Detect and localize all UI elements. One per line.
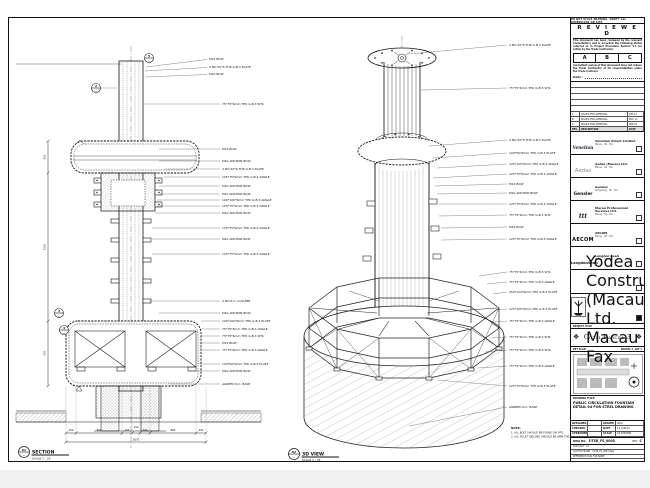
threed-drawing [304, 36, 504, 448]
consultant-box-macau-professional: ttt Macau Professional Services Ltd. Mac… [571, 201, 644, 224]
steel-annotation: M12 BOLT [222, 341, 237, 345]
date-label: Date : [573, 75, 583, 79]
bubble-number: 2 [95, 84, 97, 88]
steel-annotation: M12 BOLT [509, 182, 524, 186]
credit-value: LWO [616, 421, 644, 425]
notes-block: NOTE: 1. ALL BOLT SHOULD BE FIXING ON SI… [511, 426, 570, 439]
threed-annotations: 4 NO 50*6 THK G.B.3 PLATE 75*75*6mm THK … [509, 43, 559, 409]
rev-footer-label: DESCRIPTION [580, 127, 628, 131]
steel-annotation: M12 BOLT [222, 147, 237, 151]
dwg-no-label: DWG NO. [573, 440, 586, 443]
status-abc-row: A B C [573, 53, 642, 63]
credit-value: 14-JUN-13 [616, 426, 644, 430]
status-checkbox [636, 169, 642, 175]
view-scale: SCALE 1 : 25 [32, 457, 51, 461]
status-checkbox [636, 192, 642, 198]
dim-value: 860 [171, 428, 176, 432]
credit-value: - [588, 426, 602, 430]
steel-annotation: 125*75*6mm THK G.B.3 ANGLE [509, 172, 557, 176]
consultant-address: Macau · Tel · Fax [595, 236, 639, 239]
consultant-address: Macau · Tel · Fax [595, 144, 639, 147]
steel-annotation: 75*75*6mm THK G.B.3 ANGLE [509, 319, 555, 323]
dim-value: 650 [43, 350, 47, 355]
steel-annotation: 125*75*6mm THK G.B.3 ANGLE [222, 226, 270, 230]
consultant-box-aedas: Aedas Aedas (Macau) Ltd. Macau · Tel · F… [571, 155, 644, 178]
steel-annotation: 450*120*6mm THK G.B.3 PLATE [509, 290, 558, 294]
steel-annotation: 125*75*6mm THK G.B.3 ANGLE [222, 175, 270, 179]
steel-annotation: M12 BOLT [209, 57, 224, 61]
steel-annotation: 125*75*6mm THK G.B.3 ANGLE [222, 204, 270, 208]
cad-info-rows: CAD PLOT : A1 CAD FILE NAME : 3-TSR_FS_0… [571, 445, 644, 461]
rev-footer-label: DATE [628, 127, 644, 131]
banner-emblem-left-icon: ❖ [573, 334, 579, 341]
dim-value: 200 [199, 428, 204, 432]
status-b: B [596, 54, 618, 62]
note-line: 2. ALL FILLET WELDED SHOULD BE 6MM THK. [511, 435, 570, 439]
steel-annotation: M10 ANCHOR BOLT [222, 192, 251, 196]
steel-annotation: M10 BOLT [209, 72, 224, 76]
drawing-area: M12 BOLT 4 NO 50*6 THK G.B.3 PLATE M10 B… [9, 18, 571, 461]
steel-annotation: 4 NO 50*6 THK G.B.3 PLATE [509, 43, 551, 47]
credit-label: DATE [602, 426, 616, 430]
dim-value: 1500 [43, 243, 47, 250]
bubble-number: 5 [148, 54, 150, 58]
bubble-number: 3 [58, 309, 60, 313]
steel-annotation: 75*75*6mm THK G.B.3 ANGLE [222, 327, 268, 331]
title-block: DO NOT SCALE DRAWING. VERIFY ALL DIMENSI… [570, 18, 644, 461]
status-checkbox [636, 146, 642, 152]
rev-footer-label: REV [571, 127, 580, 131]
cad-sheet: M12 BOLT 4 NO 50*6 THK G.B.3 PLATE M10 B… [0, 0, 650, 488]
revision-table: C ISSUED FOR APPROVAL JUN 13 B ISSUED FO… [571, 82, 644, 132]
steel-annotation: M10 ANCHOR BOLT [222, 237, 251, 241]
steel-annotation: M12 BOLT [509, 225, 524, 229]
revision-table-footer: REV DESCRIPTION DATE [571, 127, 644, 131]
steel-annotation: M10 ANCHOR BOLT [222, 211, 251, 215]
consultant-box-aecom: AECOM AECOM Macau · Tel · Fax [571, 224, 644, 247]
drawing-title: PUBLIC CIRCULATION FOUNTAIN DETAIL 04 FO… [573, 401, 642, 410]
credits-table: DESIGNED - DRAWN LWO CHECKED - DATE 14-J… [571, 421, 644, 438]
steel-annotation: 4 NO 50*6 THK G.B.3 PLATE [509, 138, 551, 142]
steel-annotation: 125*75*6mm THK G.B.3 ANGLE [509, 237, 557, 241]
cad-row: REFERENCE DWG FILE NAME [571, 455, 644, 460]
key-plan-label: KEY PLAN [573, 348, 586, 351]
steel-annotation: 100*100*6mm THK G.B.3 ANGLE [222, 198, 272, 202]
ttt-logo: ttt [579, 213, 587, 220]
reviewed-stamp: R E V I E W E D This document has been r… [571, 24, 644, 82]
dim-value: 200 [143, 428, 148, 432]
steel-annotation: 100*50*6mm THK G.B.3 PLATE [509, 151, 556, 155]
credit-value: AS SHOWN [616, 432, 644, 436]
dim-value: 200 [69, 428, 74, 432]
credit-label: DRAWN [602, 421, 616, 425]
aedas-logo: Aedas [575, 168, 591, 174]
section-view-label: 01 - SECTION SCALE 1 : 25 [19, 447, 70, 461]
note-title: NOTE: [511, 426, 521, 430]
steel-annotation: M10 ANCHOR BOLT [222, 159, 251, 163]
rev-date: MAY 13 [628, 117, 644, 121]
status-checkbox [636, 215, 642, 221]
contractor-tree-logo [571, 297, 586, 317]
credit-label: DESIGNED [571, 421, 588, 425]
status-c: C [619, 54, 641, 62]
steel-annotation: 125*125*6mm THK G.B.3 PLATE [509, 307, 558, 311]
dim-total: 2670 [133, 437, 140, 441]
steel-annotation: 75*75*6mm THK G.B.3 ANGLE [222, 348, 268, 352]
section-drawing [16, 46, 261, 448]
drawing-title-label: DRAWING TITLE: [573, 397, 642, 400]
steel-annotation: 125*125*6mm THK G.B.3 ANGLE [509, 162, 559, 166]
steel-annotation: 4 NO 50*6 THK G.B.3 PLATE [209, 65, 251, 69]
rev-label: REV [632, 440, 637, 443]
rev-letter: C [571, 112, 580, 116]
steel-annotation: 4 NO 50*6 THK G.B.3 PLATE [222, 167, 264, 171]
consultant-box-gensler: Gensler Gensler Hong Kong · Tel · Fax [571, 178, 644, 201]
note-line: 1. ALL BOLT SHOULD BE FIXING ON SITE. [511, 431, 564, 435]
rev-date: APR 13 [628, 122, 644, 126]
credit-label: CHECKED [571, 426, 588, 430]
consultant-name: Macau Professional Services Ltd. [595, 207, 639, 214]
contractor-box: Yodea Construction (Macau) Co., Ltd. Mac… [571, 294, 644, 324]
credit-label: SCALE [602, 432, 616, 436]
steel-annotation: 4 NO R.C. COLUMN [222, 299, 250, 303]
sheet-border: M12 BOLT 4 NO 50*6 THK G.B.3 PLATE M10 B… [8, 17, 645, 462]
steel-annotation: 100*100*6mm THK G.B.3 PLATE [222, 319, 271, 323]
dim-value: 200 [125, 428, 130, 432]
reviewed-paragraph: This document has been reviewed by the r… [573, 40, 642, 52]
rev-description: ISSUED FOR APPROVAL [580, 117, 628, 121]
dim-value: 860 [97, 428, 102, 432]
steel-annotation: 75*75*6mm THK G.B.3 SHS [509, 270, 551, 274]
venetian-logo: Venetian [573, 145, 594, 150]
dim-value: 150 [134, 425, 139, 429]
rev-letter: B [571, 117, 580, 121]
gensler-logo: Gensler [574, 192, 593, 197]
steel-annotation: 100*50*6mm THK G.B.3 PLATE [222, 362, 269, 366]
rev-letter: A [571, 122, 580, 126]
steel-annotation: M10 ANCHOR BOLT [509, 191, 538, 195]
steel-annotation: 75*75*6mm THK G.B.3 SHS [222, 102, 264, 106]
steel-annotation: 75*75*6mm THK G.B.3 ANGLE [509, 364, 555, 368]
dim-value: 650 [43, 154, 47, 159]
view-bubble-number: 01 [22, 448, 26, 452]
steel-annotation: M10 ANCHOR BOLT [222, 311, 251, 315]
rev-value: C [640, 439, 643, 443]
threed-view-label: 02 - 3D VIEW SCALE 1 : 25 [289, 449, 340, 462]
dwg-number: 3-TSR_FS_0003 [588, 439, 632, 443]
view-bubble-number: 02 [292, 450, 296, 454]
steel-annotation: 75*75*6mm THK G.B.3 SHS [509, 348, 551, 352]
date-fill-line [585, 75, 642, 79]
steel-annotation: 125*75*6mm THK G.B.3 ANGLE [222, 252, 270, 256]
rev-description: ISSUED FOR APPROVAL [580, 112, 628, 116]
reviewed-paragraph: Consultant review of this document does … [573, 65, 642, 74]
paper-edge-band [0, 470, 650, 488]
status-checkbox [636, 238, 642, 244]
steel-annotation: 75*75*6mm THK G.B.3 SHS [509, 335, 551, 339]
bubble-number: 4 [63, 326, 65, 330]
steel-annotation: 75*75*6mm THK G.B.3 ANGLE [509, 280, 555, 284]
credit-value: - [588, 432, 602, 436]
section-annotations: M12 BOLT 4 NO 50*6 THK G.B.3 PLATE M10 B… [209, 57, 272, 386]
steel-annotation: 75*75*6mm THK G.B.3 SHS [509, 213, 551, 217]
steel-annotation: 125*75*6mm THK G.B.3 ANGLE [509, 202, 557, 206]
steel-annotation: M10 ANCHOR BOLT [222, 369, 251, 373]
steel-annotation: 75*75*6mm THK G.B.3 SHS [509, 86, 551, 90]
steel-annotation: 125*75*6mm THK G.B.3 PLATE [509, 384, 556, 388]
contractor-address: Macau · Tel · Fax [586, 328, 644, 366]
aecom-logo: AECOM [572, 237, 594, 243]
steel-annotation: 75*75*6mm THK G.B.3 SHS [222, 334, 264, 338]
consultant-address: Hong Kong · Tel · Fax [595, 190, 639, 193]
consultant-box-venetian: Venetian Venetian Orient Limited Macau ·… [571, 132, 644, 155]
dwg-number-row: DWG NO. 3-TSR_FS_0003 REV C [571, 438, 644, 445]
steel-annotation: M10 ANCHOR BOLT [222, 184, 251, 188]
consultant-address: Macau · Tel · Fax [595, 214, 639, 217]
rev-description: ISSUED FOR APPROVAL [580, 122, 628, 126]
status-checkbox-filled [636, 315, 642, 321]
credit-value: - [588, 421, 602, 425]
steel-annotation: AGREED R.C. BASE [509, 405, 537, 409]
credit-label: APPROVED [571, 432, 588, 436]
drawing-title-box: DRAWING TITLE: PUBLIC CIRCULATION FOUNTA… [571, 396, 644, 421]
consultant-address: Macau · Tel · Fax [595, 167, 639, 170]
steel-annotation: AGREED R.C. BASE [222, 382, 250, 386]
date-line: Date : [573, 75, 642, 79]
rev-date: JUN 13 [628, 112, 644, 116]
reviewed-title: R E V I E W E D [573, 25, 642, 39]
view-scale: SCALE 1 : 25 [302, 458, 321, 461]
status-a: A [574, 54, 596, 62]
